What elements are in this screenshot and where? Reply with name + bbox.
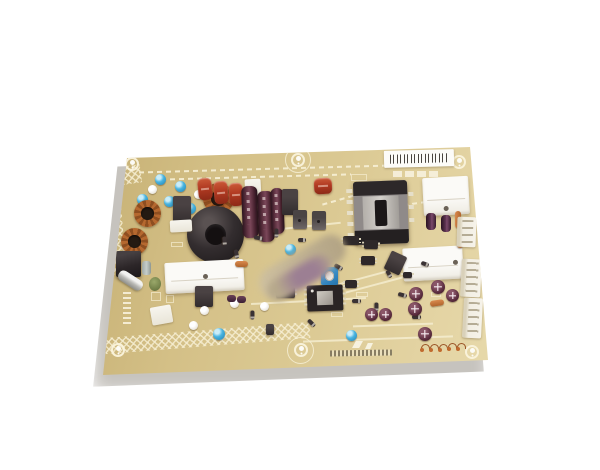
screw bbox=[453, 260, 458, 265]
diode bbox=[254, 235, 264, 241]
electrolytic-capacitor bbox=[409, 287, 423, 301]
small-capacitor bbox=[142, 261, 151, 275]
barcode-label bbox=[384, 149, 454, 168]
heatsink-plate bbox=[422, 176, 470, 216]
silkscreen-footprint bbox=[166, 295, 174, 303]
electrolytic-capacitor bbox=[408, 302, 422, 316]
circuit-board bbox=[103, 144, 493, 380]
electrolytic-capacitor bbox=[446, 289, 459, 302]
silkscreen-footprint bbox=[171, 242, 183, 247]
ic-chip-small bbox=[345, 280, 357, 288]
small-electrolytic bbox=[441, 215, 451, 232]
transformer-core bbox=[353, 180, 407, 196]
silkscreen-footprint bbox=[356, 292, 368, 297]
transistor bbox=[195, 286, 213, 307]
silkscreen-footprint bbox=[151, 292, 161, 301]
transformer-slot bbox=[375, 199, 388, 225]
screw bbox=[444, 206, 449, 211]
resistor bbox=[235, 261, 248, 267]
ic-chip-small bbox=[403, 272, 412, 278]
jumper-wire bbox=[457, 343, 466, 349]
silkscreen-logo bbox=[352, 341, 363, 348]
blue-capacitor bbox=[155, 174, 166, 185]
electrolytic-capacitor bbox=[431, 280, 445, 294]
white-capacitor bbox=[260, 302, 269, 311]
silkscreen-trace bbox=[353, 323, 433, 328]
resistor bbox=[430, 299, 445, 307]
ic-chip-small bbox=[364, 240, 378, 249]
mounting-hole-icon bbox=[465, 345, 479, 359]
small-electrolytic bbox=[237, 296, 246, 303]
silkscreen-footprint bbox=[331, 312, 343, 317]
silkscreen-mark bbox=[417, 171, 426, 177]
electrolytic-capacitor bbox=[379, 308, 392, 321]
silkscreen-part-number-vertical bbox=[123, 292, 131, 326]
switching-transformer bbox=[353, 180, 409, 245]
ic-pad bbox=[317, 291, 333, 305]
white-film-capacitor bbox=[170, 219, 193, 232]
diode bbox=[222, 236, 227, 245]
toroid-inductor bbox=[134, 200, 161, 227]
blue-capacitor bbox=[213, 328, 225, 340]
mounting-hole-ring bbox=[285, 147, 311, 173]
pcb-product-photo bbox=[0, 0, 600, 470]
mounting-hole-icon bbox=[111, 343, 125, 357]
transformer-pins bbox=[346, 189, 354, 238]
mounting-hole-icon bbox=[125, 157, 139, 171]
transistor bbox=[293, 210, 307, 229]
silkscreen-part-number-bottom bbox=[330, 349, 392, 356]
small-electrolytic bbox=[227, 295, 236, 302]
screw bbox=[203, 274, 208, 279]
blue-capacitor bbox=[175, 181, 186, 192]
ic-pin1-dot bbox=[311, 289, 314, 292]
white-capacitor bbox=[148, 185, 157, 194]
edge-connector bbox=[456, 217, 476, 248]
transformer-pins bbox=[408, 192, 414, 231]
diode bbox=[298, 238, 306, 242]
white-component bbox=[150, 304, 174, 325]
white-capacitor bbox=[200, 306, 209, 315]
green-disc-capacitor bbox=[148, 276, 162, 292]
electrolytic-capacitor-large bbox=[241, 186, 259, 239]
electrolytic-capacitor bbox=[365, 308, 378, 321]
edge-connector bbox=[462, 298, 483, 339]
edge-connector bbox=[460, 259, 482, 298]
silkscreen-mark bbox=[405, 171, 414, 177]
ic-chip-small bbox=[343, 236, 359, 245]
silkscreen-hatch-band bbox=[105, 322, 311, 354]
diode bbox=[352, 299, 361, 303]
diode bbox=[398, 292, 408, 298]
silkscreen-mark bbox=[429, 171, 438, 177]
ic-chip-small bbox=[361, 256, 375, 265]
transistor bbox=[312, 211, 326, 230]
silkscreen-trace bbox=[139, 165, 389, 174]
mounting-hole-ring bbox=[287, 337, 314, 364]
small-electrolytic bbox=[426, 213, 436, 230]
red-film-capacitor bbox=[197, 177, 213, 200]
white-capacitor bbox=[189, 321, 198, 330]
red-film-capacitor bbox=[213, 180, 229, 204]
board-area bbox=[103, 144, 493, 380]
diode bbox=[251, 311, 255, 320]
ic-chip bbox=[307, 284, 344, 311]
electrolytic-capacitor bbox=[418, 327, 432, 341]
diode bbox=[275, 229, 279, 238]
silkscreen-mark bbox=[393, 171, 402, 177]
silkscreen-footprint bbox=[351, 174, 367, 181]
blue-capacitor bbox=[346, 330, 357, 341]
transistor-small bbox=[266, 324, 274, 335]
red-film-capacitor bbox=[314, 178, 333, 195]
silkscreen-logo bbox=[365, 343, 373, 349]
